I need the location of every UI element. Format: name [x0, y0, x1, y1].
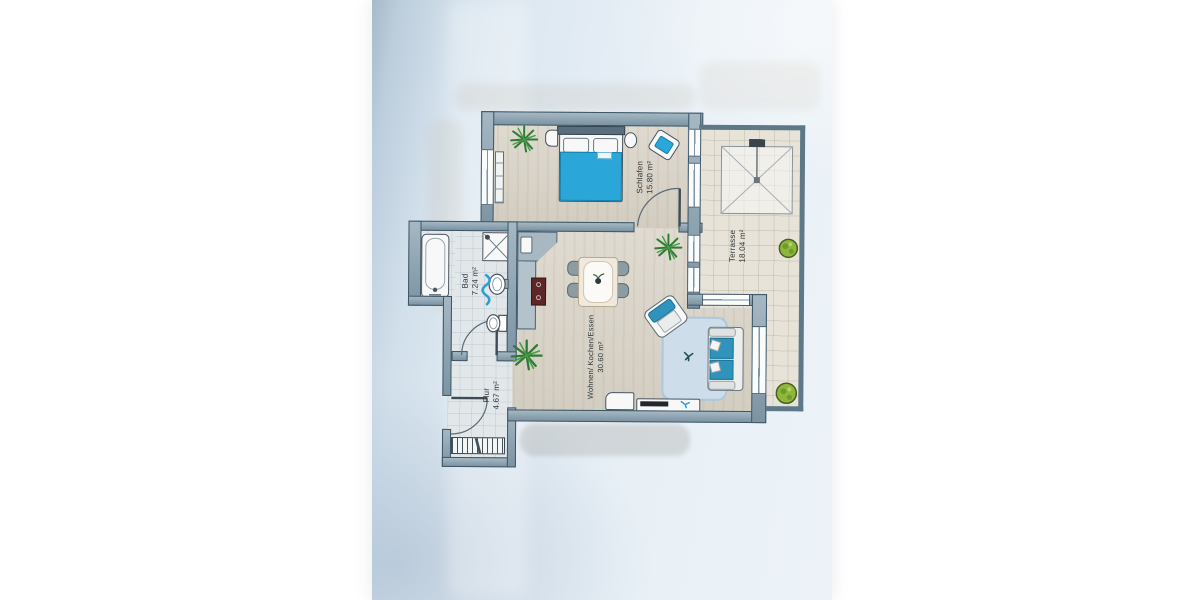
room-area: 30.60 m² — [595, 315, 605, 399]
room-name: Bad — [461, 267, 471, 296]
window-icon — [687, 267, 700, 293]
wall — [408, 221, 634, 233]
floor-plan: Schlafen 15.80 m² Terrasse 18.04 m² Bad … — [0, 0, 1200, 600]
dining-table-top — [583, 261, 613, 303]
sofa-cushion — [709, 360, 733, 380]
room-name: Wohnen/ Kochen/Essen — [586, 315, 596, 399]
chair-seat — [654, 135, 674, 155]
room-area: 4.67 m² — [491, 381, 501, 410]
pillow-icon — [593, 138, 618, 153]
room-name: Terrasse — [728, 229, 738, 262]
terrace-railing — [798, 125, 805, 411]
sink-icon — [520, 236, 532, 253]
wall — [408, 221, 422, 306]
nightstand-icon — [624, 132, 637, 148]
room-label-schlafen: Schlafen 15.80 m² — [635, 161, 654, 194]
sofa-armrest — [708, 381, 735, 390]
wall — [481, 111, 703, 127]
awning-mount — [749, 139, 765, 147]
sofa-cushion — [710, 338, 734, 359]
stairs-hatch-icon — [451, 437, 505, 454]
window-icon — [751, 326, 766, 394]
cabinet-icon — [605, 392, 634, 410]
room-label-flur: Flur 4.67 m² — [482, 381, 501, 410]
bed-blanket — [560, 152, 622, 201]
wall — [497, 351, 517, 361]
room-name: Flur — [482, 381, 492, 410]
bed-headboard — [557, 126, 625, 135]
bathtub-inner — [425, 238, 445, 290]
wall — [452, 351, 468, 361]
sofa-armrest — [709, 328, 736, 337]
pillow-icon — [563, 138, 589, 153]
room-label-bad: Bad 7.24 m² — [461, 267, 480, 296]
floor-plan-photo-page: Schlafen 15.80 m² Terrasse 18.04 m² Bad … — [0, 0, 1200, 600]
window-icon — [702, 294, 750, 306]
terrace-railing — [766, 406, 803, 411]
wall — [507, 409, 766, 423]
nightstand-icon — [545, 130, 558, 147]
room-name: Schlafen — [635, 161, 645, 194]
shower-icon — [482, 232, 510, 261]
room-label-terrasse: Terrasse 18.04 m² — [728, 229, 747, 262]
room-area: 7.24 m² — [470, 267, 480, 296]
blanket-fold — [597, 152, 612, 159]
window-icon — [688, 129, 701, 157]
room-area: 18.04 m² — [737, 229, 747, 262]
room-label-wohnen: Wohnen/ Kochen/Essen 30.60 m² — [586, 315, 606, 399]
terrace-railing — [699, 125, 805, 131]
radiator-icon — [495, 151, 504, 203]
window-icon — [687, 235, 700, 263]
wall — [442, 457, 516, 468]
stove-icon — [531, 278, 546, 306]
window-icon — [688, 163, 701, 208]
window-icon — [481, 149, 494, 205]
wall — [507, 221, 518, 361]
tv-icon — [640, 401, 668, 406]
room-area: 15.80 m² — [645, 161, 655, 194]
wall — [442, 296, 452, 396]
awning-icon — [721, 146, 793, 215]
